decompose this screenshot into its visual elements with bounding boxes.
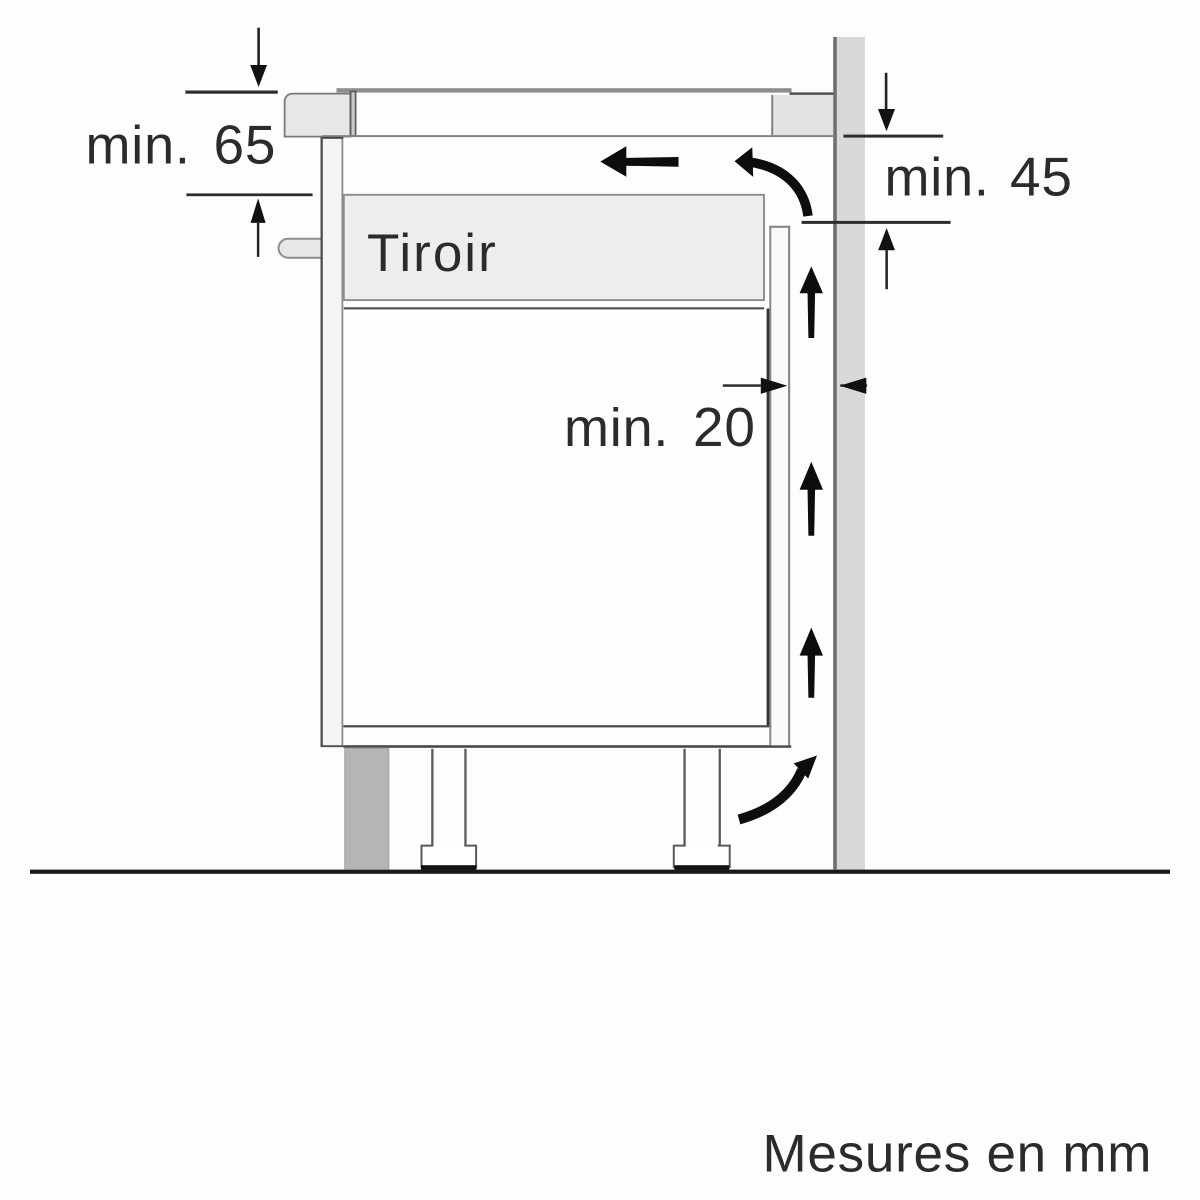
svg-text:min.45: min.45: [885, 146, 1073, 208]
svg-text:Mesures en mm: Mesures en mm: [763, 1125, 1153, 1184]
svg-text:min.65: min.65: [86, 114, 277, 176]
svg-text:min.20: min.20: [564, 396, 756, 458]
svg-text:Tiroir: Tiroir: [367, 224, 498, 283]
